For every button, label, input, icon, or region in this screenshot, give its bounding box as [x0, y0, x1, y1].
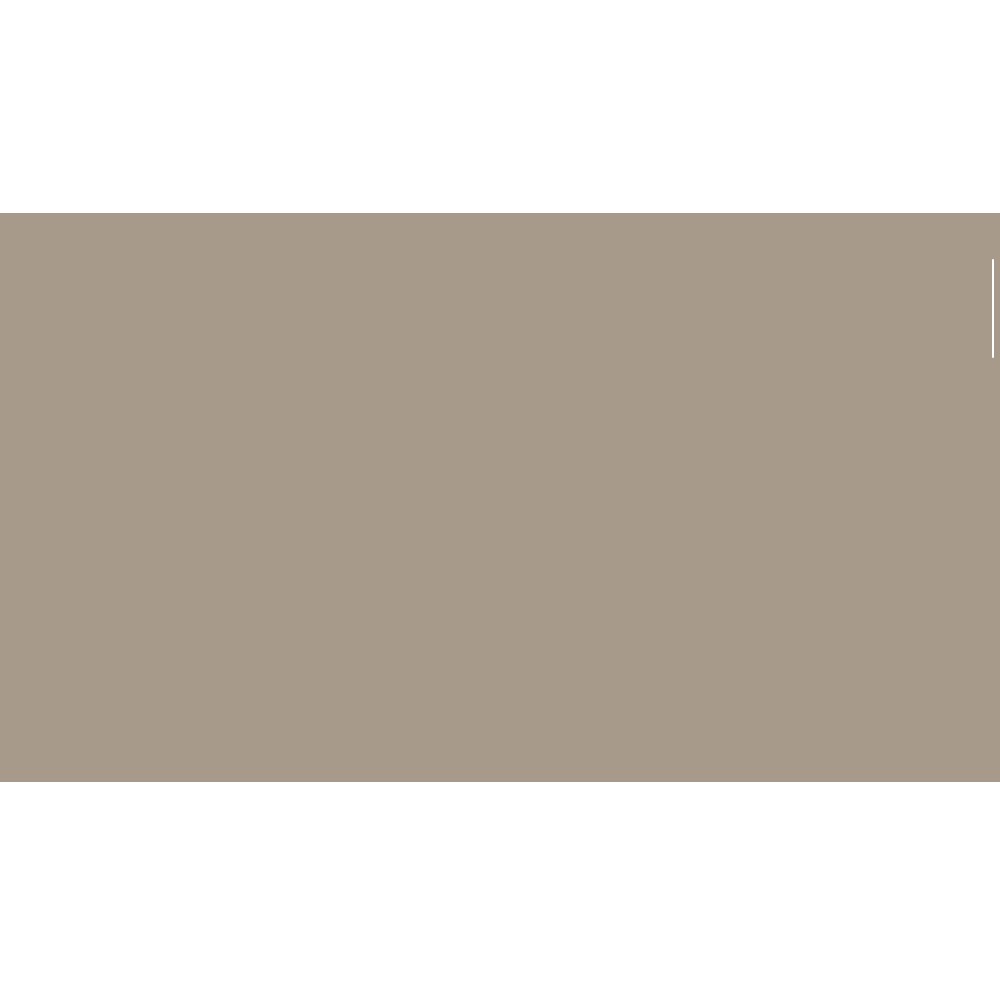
- solid-color-content: [0, 213, 1000, 782]
- scrollbar-thumb[interactable]: [992, 259, 994, 358]
- letterbox-top: [0, 0, 1000, 213]
- letterbox-bottom: [0, 782, 1000, 1000]
- viewport: [0, 0, 1000, 1000]
